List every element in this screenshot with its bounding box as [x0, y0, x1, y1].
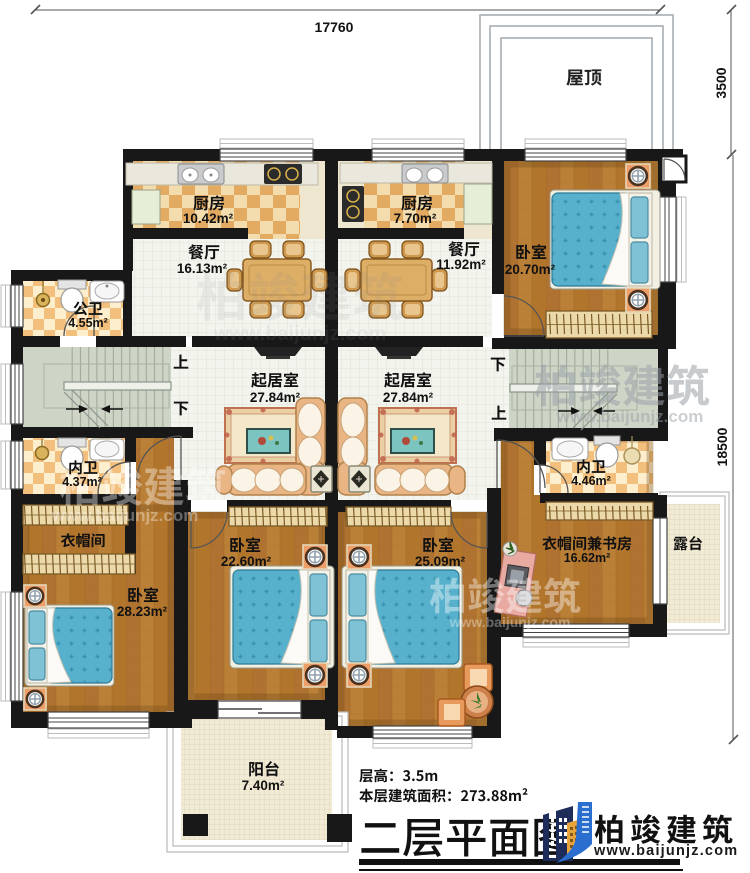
- svg-text:7.70m²: 7.70m²: [394, 211, 437, 226]
- svg-text:7.40m²: 7.40m²: [242, 778, 285, 793]
- svg-text:4.46m²: 4.46m²: [571, 474, 611, 488]
- svg-text:4.37m²: 4.37m²: [62, 475, 102, 489]
- svg-text:www.baijunjz.com: www.baijunjz.com: [449, 614, 571, 630]
- svg-text:16.62m²: 16.62m²: [564, 551, 611, 565]
- svg-text:www.baijunjz.com: www.baijunjz.com: [213, 323, 387, 345]
- svg-text:28.23m²: 28.23m²: [117, 604, 168, 619]
- svg-text:www.baijunjz.com: www.baijunjz.com: [593, 843, 738, 859]
- svg-text:www.baijunjz.com: www.baijunjz.com: [51, 506, 199, 525]
- svg-text:27.84m²: 27.84m²: [250, 390, 301, 405]
- svg-text:25.09m²: 25.09m²: [415, 554, 466, 569]
- svg-text:www.baijunjz.com: www.baijunjz.com: [556, 407, 704, 426]
- svg-text:18500: 18500: [714, 427, 730, 466]
- svg-text:17760: 17760: [315, 19, 354, 35]
- svg-text:4.55m²: 4.55m²: [68, 316, 108, 330]
- svg-text:16.13m²: 16.13m²: [177, 261, 228, 276]
- svg-text:3500: 3500: [713, 67, 729, 98]
- svg-text:11.92m²: 11.92m²: [436, 257, 486, 272]
- svg-text:27.84m²: 27.84m²: [383, 390, 434, 405]
- svg-text:10.42m²: 10.42m²: [183, 211, 234, 226]
- svg-text:22.60m²: 22.60m²: [221, 554, 272, 569]
- svg-text:20.70m²: 20.70m²: [505, 262, 556, 277]
